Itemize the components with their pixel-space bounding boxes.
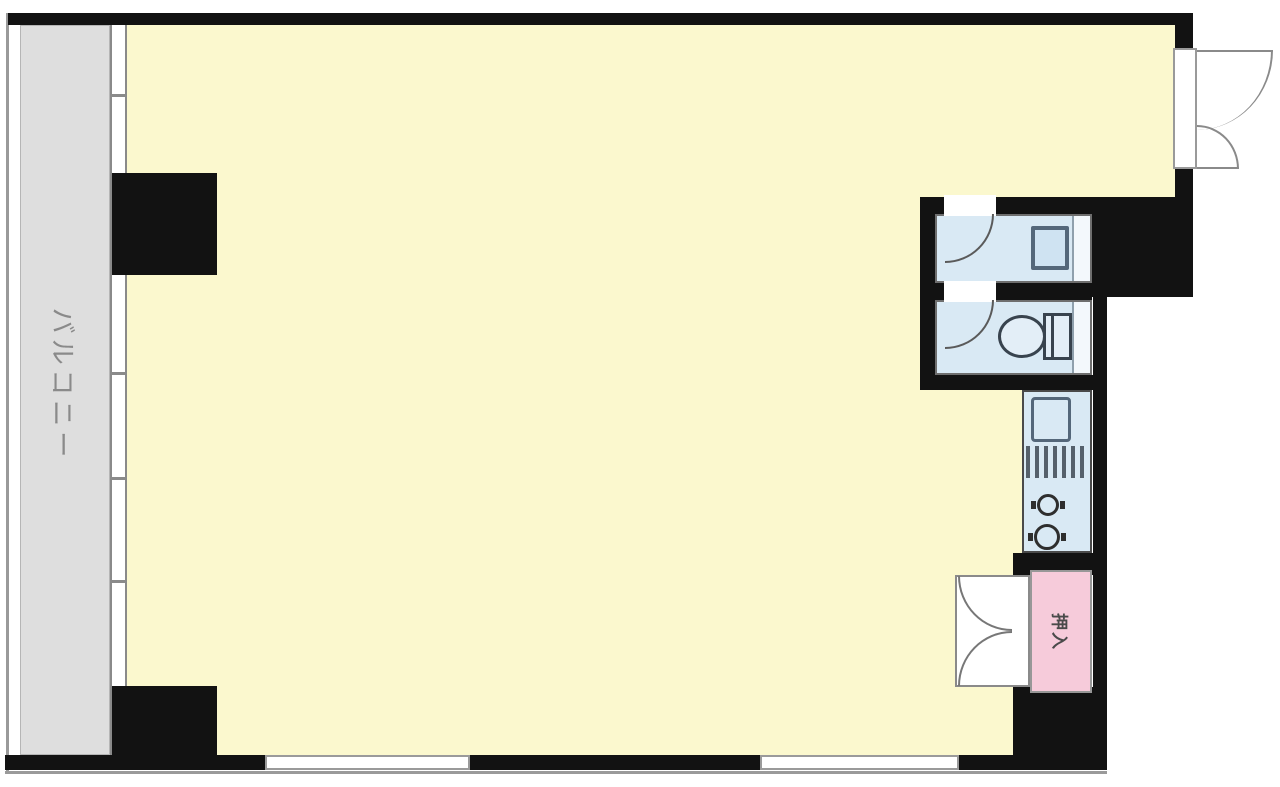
washroom-door-opening bbox=[944, 195, 996, 216]
kitchen-sink-icon bbox=[1031, 397, 1071, 442]
window-divider-tick bbox=[110, 372, 127, 375]
wall-northeast-mass bbox=[1092, 214, 1193, 297]
entry-door-opening bbox=[1173, 48, 1197, 169]
toilet-tank-icon bbox=[1043, 313, 1072, 360]
grill-icon bbox=[1026, 446, 1089, 478]
wall-top bbox=[8, 13, 1193, 25]
wall-bottom-left bbox=[5, 755, 265, 770]
washroom-counter bbox=[1072, 216, 1090, 281]
wall-bath-bottom bbox=[920, 375, 1107, 390]
closet: 押入 bbox=[1030, 570, 1092, 693]
window-divider-tick bbox=[110, 94, 127, 97]
washbasin-icon bbox=[1031, 226, 1069, 270]
south-window-icon bbox=[265, 755, 470, 770]
burner-knob-icon bbox=[1060, 501, 1065, 509]
south-wall-underline bbox=[5, 771, 1107, 774]
main-room-upper bbox=[127, 25, 1175, 197]
wall-bottom-mid bbox=[470, 755, 760, 770]
entry-door-child-swing-arc-icon bbox=[1197, 125, 1239, 169]
stove-burner-icon bbox=[1037, 494, 1059, 516]
window-divider-tick bbox=[110, 477, 127, 480]
entry-door-swing-arc-icon bbox=[1197, 50, 1273, 130]
stove-burner-icon bbox=[1034, 524, 1060, 550]
balcony-outer-rail bbox=[6, 13, 9, 773]
main-room-body bbox=[127, 197, 920, 755]
burner-knob-icon bbox=[1031, 501, 1036, 509]
wall-southeast-mass bbox=[1013, 687, 1107, 757]
window-divider-tick bbox=[110, 580, 127, 583]
toilet-door-opening bbox=[944, 281, 996, 302]
wall-pillar-upper bbox=[112, 173, 217, 275]
burner-knob-icon bbox=[1061, 533, 1066, 541]
balcony-label: バルコニー bbox=[46, 308, 83, 462]
floor-plan: バルコニー 押入 bbox=[0, 0, 1280, 787]
south-window-icon bbox=[760, 755, 959, 770]
toilet-icon bbox=[998, 315, 1046, 358]
closet-label: 押入 bbox=[1049, 613, 1074, 651]
wall-bottom-right bbox=[959, 755, 1107, 770]
main-room-lower-right bbox=[920, 390, 1022, 755]
wall-bath-left bbox=[920, 197, 935, 390]
burner-knob-icon bbox=[1028, 533, 1033, 541]
toilet-side-strip bbox=[1072, 302, 1090, 373]
wall-right-below-door bbox=[1175, 165, 1193, 198]
wall-pillar-lower bbox=[112, 686, 217, 757]
balcony-window-icon bbox=[110, 25, 127, 755]
